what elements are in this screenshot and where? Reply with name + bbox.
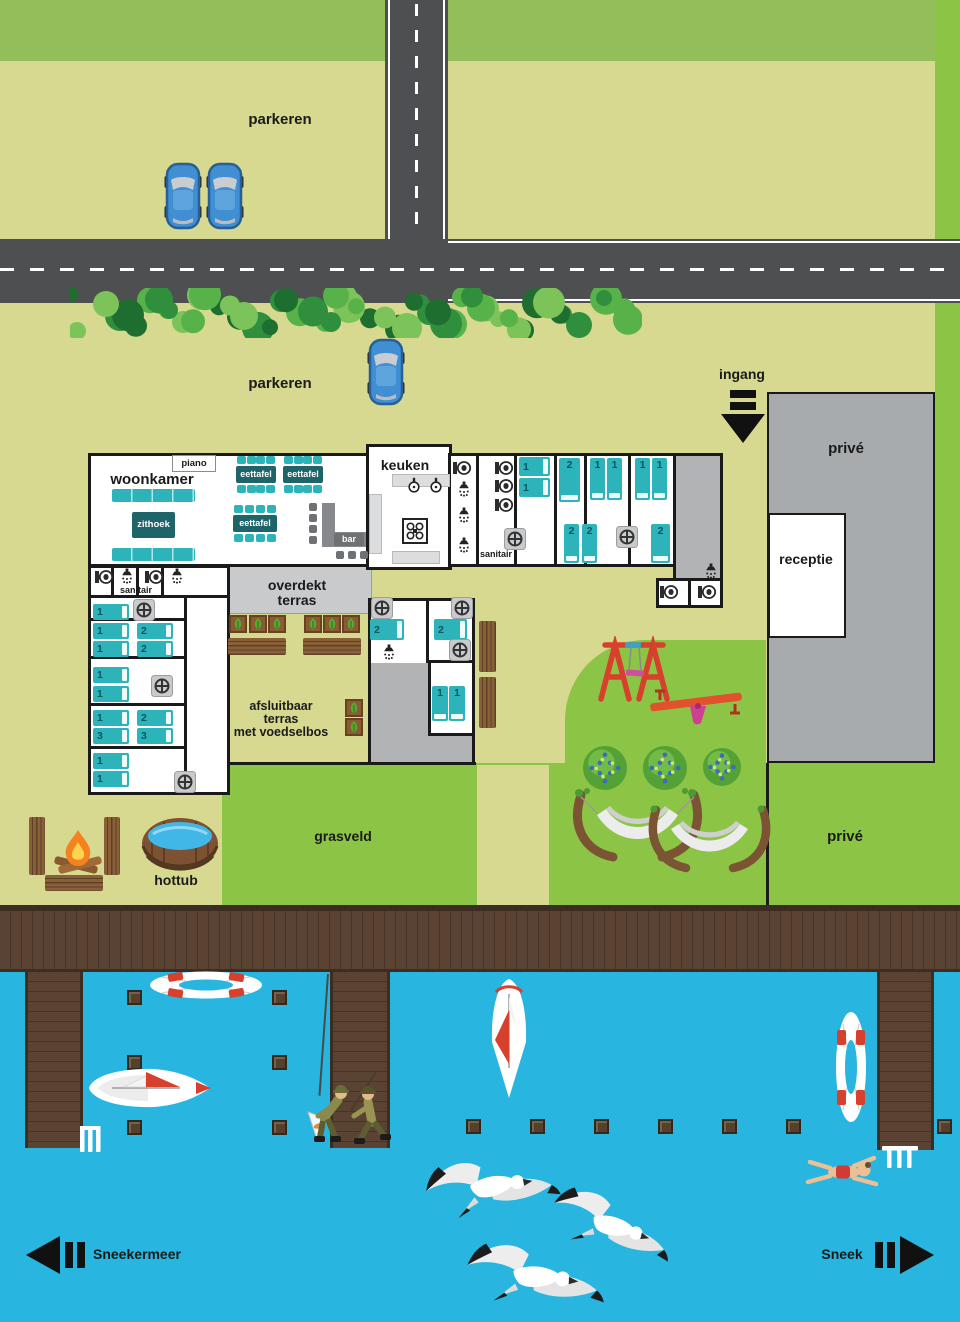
label-grass-field: grasveld	[314, 829, 372, 844]
label-private-bottom: privé	[827, 829, 863, 845]
label-private-top: privé	[828, 441, 864, 457]
label-living-room: woonkamer	[110, 472, 193, 488]
label-covered-terrace: overdekt terras	[268, 578, 326, 608]
label-sanitary-left: sanitair	[120, 586, 152, 595]
labels-layer: parkeren parkeren ingang privé receptie …	[0, 0, 960, 1322]
label-sanitary-mid: sanitair	[480, 550, 512, 559]
label-entrance: ingang	[719, 367, 765, 382]
label-closable-terrace-line3: met voedselbos	[234, 726, 328, 739]
label-parking-top: parkeren	[248, 112, 311, 128]
label-parking-mid: parkeren	[248, 376, 311, 392]
label-closable-terrace: afsluitbaar terras met voedselbos	[234, 700, 328, 739]
label-kitchen: keuken	[381, 458, 429, 473]
label-covered-terrace-line1: overdekt	[268, 578, 326, 593]
label-hottub: hottub	[154, 873, 198, 888]
campsite-map: bar piano zithoek 1121211123311112111122…	[0, 0, 960, 1322]
label-reception: receptie	[779, 552, 833, 567]
label-covered-terrace-line2: terras	[268, 593, 326, 608]
label-town: Sneek	[821, 1247, 862, 1262]
label-lake: Sneekermeer	[93, 1247, 181, 1262]
